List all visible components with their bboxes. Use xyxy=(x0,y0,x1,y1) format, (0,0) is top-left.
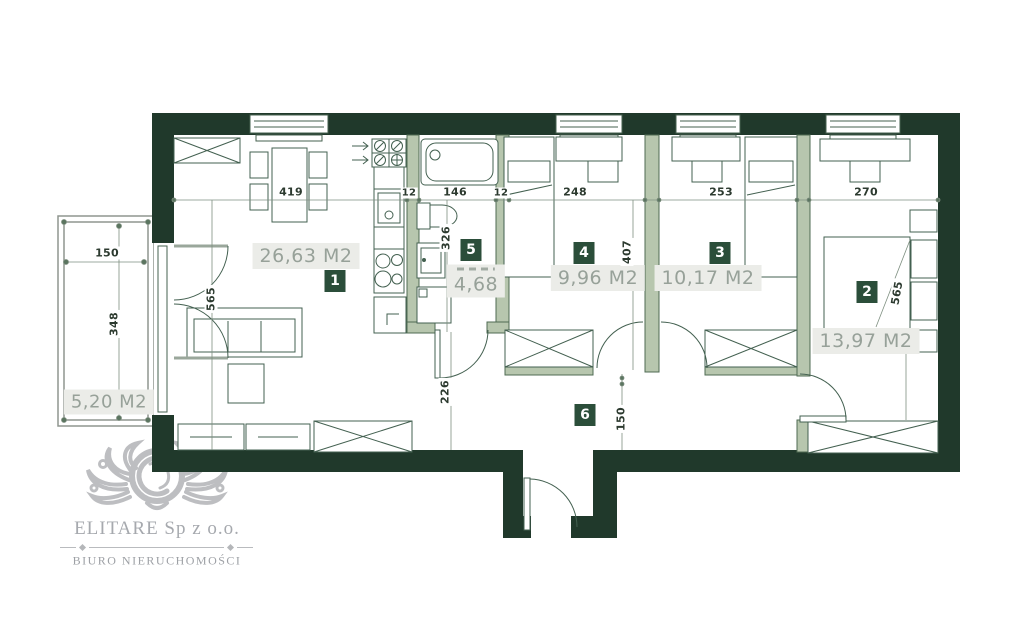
dim-balcony-width: 150 xyxy=(93,247,121,260)
desk-room3 xyxy=(672,137,740,182)
desk-room4 xyxy=(556,137,622,182)
wardrobe-room3 xyxy=(705,330,797,367)
room6-badge: 6 xyxy=(575,404,596,426)
room2-door xyxy=(800,374,846,422)
room3-area-label: 10,17 M2 xyxy=(655,265,762,291)
dim-bath-depth: 326 xyxy=(440,224,453,252)
room1-badge: 1 xyxy=(325,270,346,292)
floor-plan: 419 12 146 12 248 253 270 565 326 407 56… xyxy=(0,0,1024,634)
fridge xyxy=(374,297,406,333)
tv-cabinets xyxy=(178,424,310,450)
wardrobe-living-2 xyxy=(314,421,412,452)
bathtub xyxy=(421,139,498,185)
kitchen-sink xyxy=(374,189,404,227)
room4-badge: 4 xyxy=(574,242,595,264)
room2-area-label: 13,97 M2 xyxy=(813,328,920,354)
window-living xyxy=(250,115,328,141)
window-room2 xyxy=(826,115,900,141)
bathroom-door xyxy=(435,330,488,378)
dim-hall-depth: 226 xyxy=(439,378,452,406)
coffee-table xyxy=(228,364,264,403)
room5-badge: 5 xyxy=(461,239,482,261)
balcony-area-label: 5,20 M2 xyxy=(64,390,154,415)
kitchen-counter-2 xyxy=(374,227,404,249)
wardrobe-room4 xyxy=(505,330,593,367)
room5-area-label: 4,68 xyxy=(447,265,505,298)
room4-door xyxy=(597,322,643,368)
wardrobe-room2 xyxy=(808,421,938,453)
room2-badge: 2 xyxy=(857,281,878,303)
logo-tagline: BIURO NIERUCHOMOŚCI xyxy=(73,554,242,569)
clipped-text-fragment xyxy=(457,268,495,271)
room3-door xyxy=(661,322,707,368)
dim-bath-width: 146 xyxy=(441,186,469,199)
logo-company-name: ELITARE Sp z o.o. xyxy=(74,518,240,540)
dim-living-width: 419 xyxy=(277,186,305,199)
desk-room2 xyxy=(820,139,910,182)
wardrobe-living xyxy=(174,138,240,163)
diamond-icon xyxy=(79,544,86,551)
dim-wall-a: 12 xyxy=(401,188,418,199)
bed-room4 xyxy=(504,137,554,277)
sofa xyxy=(187,308,302,357)
dim-room3-width: 253 xyxy=(707,186,735,199)
dim-room2-width: 270 xyxy=(852,186,880,199)
dim-wall-b: 12 xyxy=(493,188,510,199)
dim-rooms-depth: 407 xyxy=(621,238,634,266)
kitchen-hob xyxy=(374,249,404,293)
dim-balcony-depth: 348 xyxy=(108,310,121,338)
bed-room3 xyxy=(745,137,797,277)
room4-area-label: 9,96 M2 xyxy=(551,265,645,291)
entrance-door xyxy=(524,478,577,530)
logo-divider xyxy=(60,545,253,550)
room3-badge: 3 xyxy=(710,242,731,264)
kitchen-counter xyxy=(374,167,404,189)
furniture xyxy=(174,137,938,453)
diamond-icon xyxy=(227,544,234,551)
room1-area-label: 26,63 M2 xyxy=(253,243,360,269)
dim-hall-width: 150 xyxy=(615,405,628,433)
dim-living-depth: 565 xyxy=(205,285,218,313)
balcony-door-opening xyxy=(154,243,172,415)
dim-room4-width: 248 xyxy=(561,186,589,199)
